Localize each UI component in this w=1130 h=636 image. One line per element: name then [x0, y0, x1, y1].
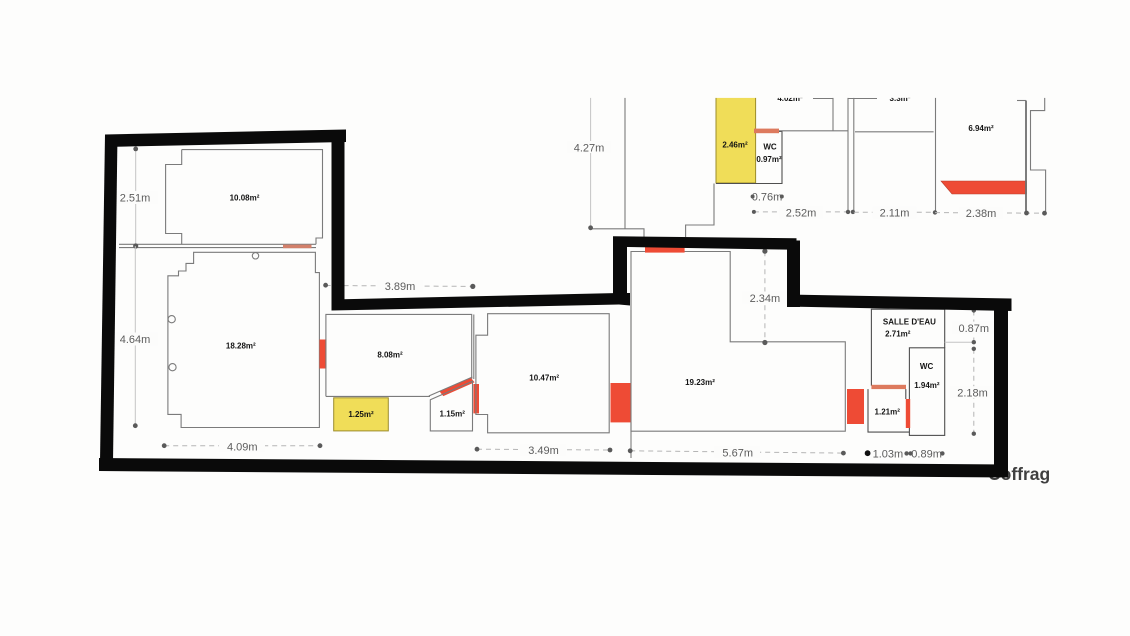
- svg-text:2.52m: 2.52m: [786, 207, 817, 219]
- svg-text:2.71m²: 2.71m²: [885, 329, 911, 338]
- svg-text:1.25m²: 1.25m²: [348, 410, 374, 419]
- svg-text:4.27m: 4.27m: [574, 143, 605, 155]
- svg-text:5.67m: 5.67m: [722, 447, 753, 459]
- svg-text:3.89m: 3.89m: [385, 281, 416, 293]
- svg-text:2.34m: 2.34m: [750, 293, 781, 305]
- svg-text:2.51m: 2.51m: [120, 193, 151, 205]
- svg-text:4.09m: 4.09m: [227, 441, 258, 453]
- svg-text:2.18m: 2.18m: [957, 388, 988, 400]
- svg-text:2.46m²: 2.46m²: [722, 140, 748, 149]
- svg-text:1.94m²: 1.94m²: [914, 381, 940, 390]
- svg-text:3.49m: 3.49m: [528, 445, 559, 457]
- svg-text:2.11m: 2.11m: [880, 208, 910, 220]
- svg-text:0.89m: 0.89m: [911, 449, 942, 461]
- svg-text:1.03m: 1.03m: [873, 448, 904, 460]
- svg-text:19.23m²: 19.23m²: [685, 378, 715, 387]
- svg-text:8.08m²: 8.08m²: [377, 351, 403, 360]
- svg-text:SALLE D'EAU: SALLE D'EAU: [883, 317, 936, 326]
- svg-text:WC: WC: [763, 142, 777, 151]
- svg-text:10.08m²: 10.08m²: [230, 194, 260, 203]
- svg-text:18.28m²: 18.28m²: [226, 342, 256, 351]
- svg-text:0.76m: 0.76m: [752, 192, 783, 204]
- svg-text:0.97m²: 0.97m²: [756, 155, 782, 164]
- svg-text:10.47m²: 10.47m²: [529, 374, 559, 383]
- svg-text:4.64m: 4.64m: [120, 334, 151, 346]
- svg-text:2.38m: 2.38m: [966, 208, 997, 220]
- svg-text:0.87m: 0.87m: [959, 323, 990, 335]
- svg-text:WC: WC: [920, 362, 934, 371]
- svg-text:1.15m²: 1.15m²: [440, 410, 466, 419]
- svg-text:6.94m²: 6.94m²: [968, 124, 994, 133]
- svg-text:1.21m²: 1.21m²: [875, 408, 901, 417]
